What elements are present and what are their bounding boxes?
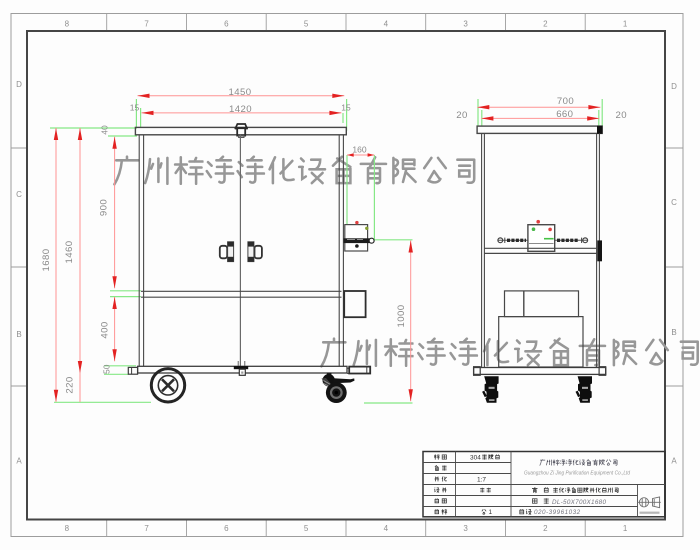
svg-text:5: 5 [304, 20, 309, 29]
svg-text:C: C [16, 190, 22, 199]
svg-text:B: B [671, 328, 676, 337]
svg-text:220: 220 [65, 376, 76, 393]
svg-text:Guangzhou Zi Jing Purification: Guangzhou Zi Jing Purification Equipment… [524, 471, 630, 477]
svg-text:DL-50X700X1680: DL-50X700X1680 [552, 499, 606, 506]
svg-text:1450: 1450 [229, 87, 252, 98]
svg-text:160: 160 [352, 144, 366, 154]
svg-text:50: 50 [102, 364, 112, 374]
svg-text:D: D [671, 82, 677, 91]
svg-text:40: 40 [100, 125, 110, 135]
svg-text:4: 4 [384, 524, 389, 533]
svg-text:2: 2 [543, 524, 548, 533]
svg-text:1420: 1420 [229, 104, 252, 115]
svg-text:6: 6 [224, 20, 229, 29]
svg-text:1: 1 [623, 524, 628, 533]
svg-text:304: 304 [470, 454, 481, 461]
svg-text:6: 6 [224, 524, 229, 533]
svg-text:3: 3 [463, 20, 468, 29]
svg-text:020-39961032: 020-39961032 [534, 509, 581, 516]
svg-text:20: 20 [615, 110, 626, 121]
svg-text:A: A [671, 457, 677, 466]
svg-text:400: 400 [100, 321, 111, 338]
svg-text:B: B [16, 330, 21, 339]
svg-text:8: 8 [65, 524, 70, 533]
svg-text:A: A [16, 457, 22, 466]
svg-text:20: 20 [456, 110, 467, 121]
svg-text:2: 2 [543, 20, 548, 29]
svg-text:1: 1 [623, 20, 628, 29]
svg-text:1460: 1460 [64, 241, 75, 264]
svg-text:1:7: 1:7 [477, 477, 486, 484]
svg-text:900: 900 [99, 199, 110, 216]
svg-text:7: 7 [144, 524, 149, 533]
svg-text:1680: 1680 [41, 249, 52, 272]
svg-text:D: D [16, 80, 22, 89]
svg-text:1: 1 [489, 509, 493, 516]
svg-text:5: 5 [304, 524, 309, 533]
svg-text:C: C [671, 198, 677, 207]
svg-text:700: 700 [557, 96, 574, 107]
svg-text:4: 4 [384, 20, 389, 29]
svg-text:3: 3 [463, 524, 468, 533]
svg-text:15: 15 [341, 103, 351, 113]
svg-text:7: 7 [144, 20, 149, 29]
svg-text:1000: 1000 [396, 305, 407, 328]
svg-text:15: 15 [130, 103, 140, 113]
svg-text:8: 8 [65, 20, 70, 29]
svg-text:660: 660 [556, 109, 573, 120]
